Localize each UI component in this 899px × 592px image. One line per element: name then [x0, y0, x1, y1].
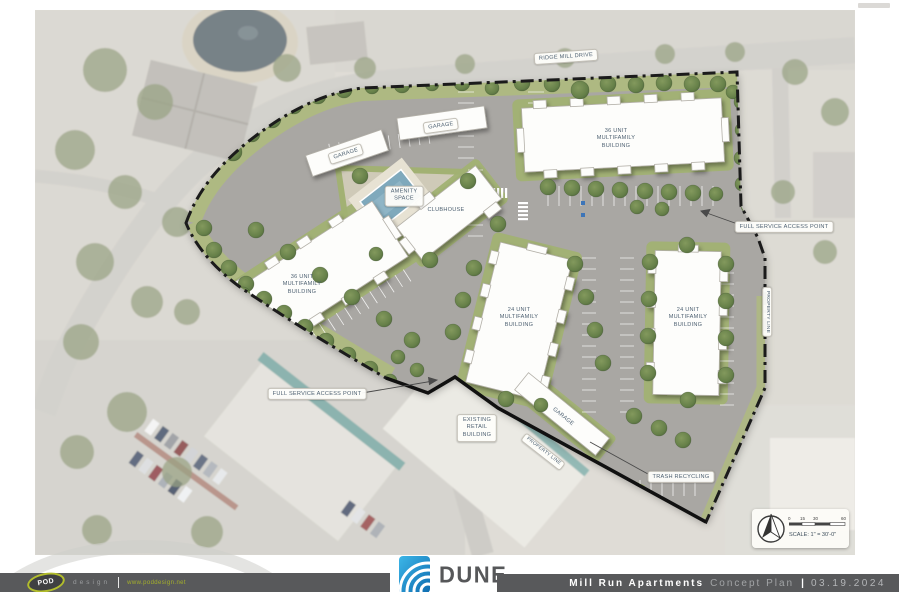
corner-watermark [858, 3, 890, 8]
pod-website: www.poddesign.net [127, 580, 186, 586]
ada-stall-icon [581, 201, 585, 205]
north-arrow-icon [758, 514, 784, 542]
scale-bar: 0 15 30 60 SCALE: 1" = 30'-0" [788, 516, 847, 538]
north-arrow-scale-box: 0 15 30 60 SCALE: 1" = 30'-0" [752, 509, 849, 548]
pod-tagline: design [73, 579, 110, 586]
title-separator: | [801, 578, 804, 589]
pod-logo-text: POD [37, 578, 55, 588]
pod-logo: POD [26, 570, 67, 592]
scale-tick: 60 [841, 516, 847, 521]
plan-date: 03.19.2024 [811, 578, 886, 589]
footer-pod-bar: POD design www.poddesign.net [0, 573, 390, 592]
building-24-unit-east [646, 244, 729, 395]
ada-stall-icon [581, 213, 585, 217]
scale-text: SCALE: 1" = 30'-0" [789, 532, 836, 538]
pod-separator [118, 577, 119, 588]
document-type: Concept Plan [710, 578, 794, 589]
dune-logo-icon [399, 556, 430, 592]
scale-tick: 15 [800, 516, 806, 521]
site-plan [0, 0, 899, 592]
project-name: Mill Run Apartments [569, 578, 704, 589]
scale-tick: 30 [813, 516, 819, 521]
scale-tick: 0 [788, 516, 791, 521]
concept-plan-sheet: RIDGE MILL DRIVE GARAGE GARAGE AMENITY S… [0, 0, 899, 592]
footer-title-bar: Mill Run Apartments Concept Plan | 03.19… [497, 574, 899, 592]
dune-logo: DUNE [399, 556, 507, 592]
